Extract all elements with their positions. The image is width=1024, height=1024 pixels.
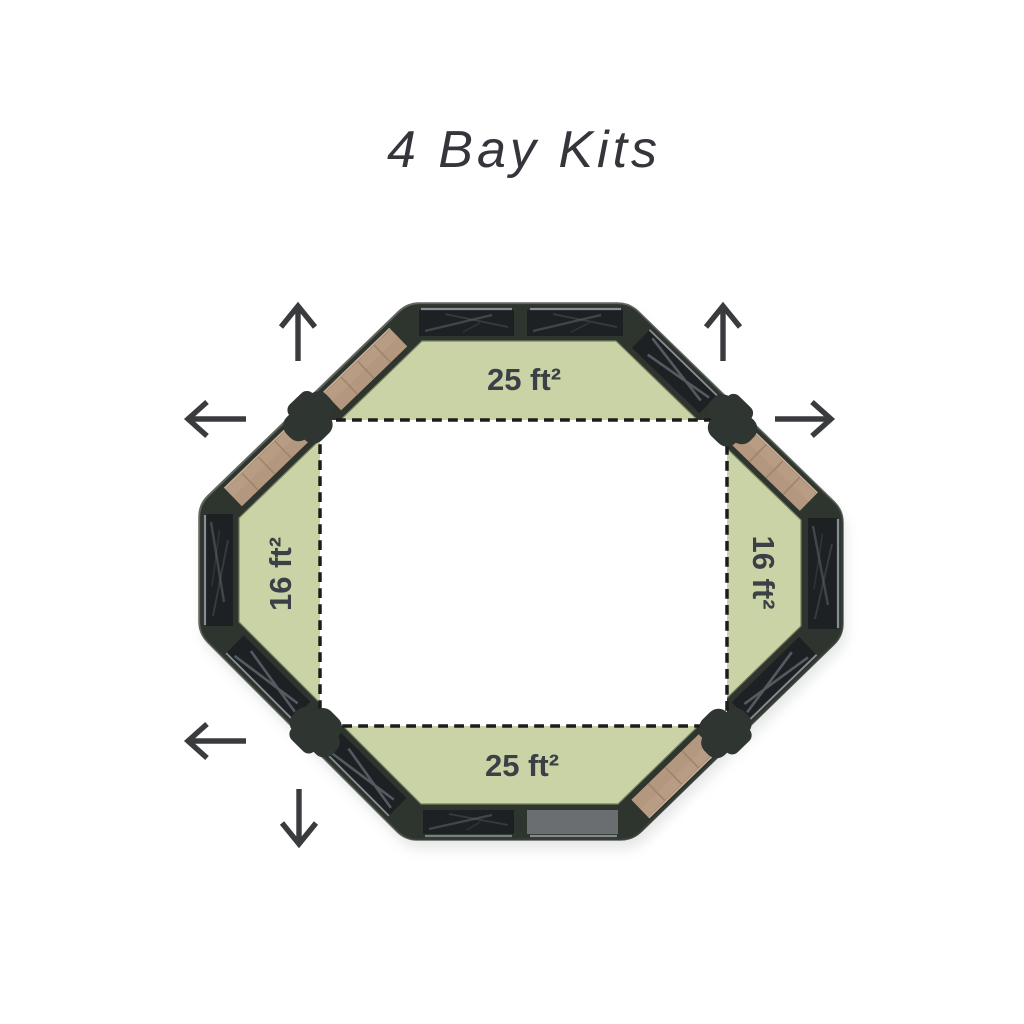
svg-text:25 ft²: 25 ft² (485, 748, 559, 783)
svg-text:16 ft²: 16 ft² (263, 537, 298, 611)
svg-text:4 Bay Kits: 4 Bay Kits (387, 121, 661, 179)
svg-text:16 ft²: 16 ft² (746, 535, 781, 609)
svg-text:25 ft²: 25 ft² (487, 362, 561, 397)
